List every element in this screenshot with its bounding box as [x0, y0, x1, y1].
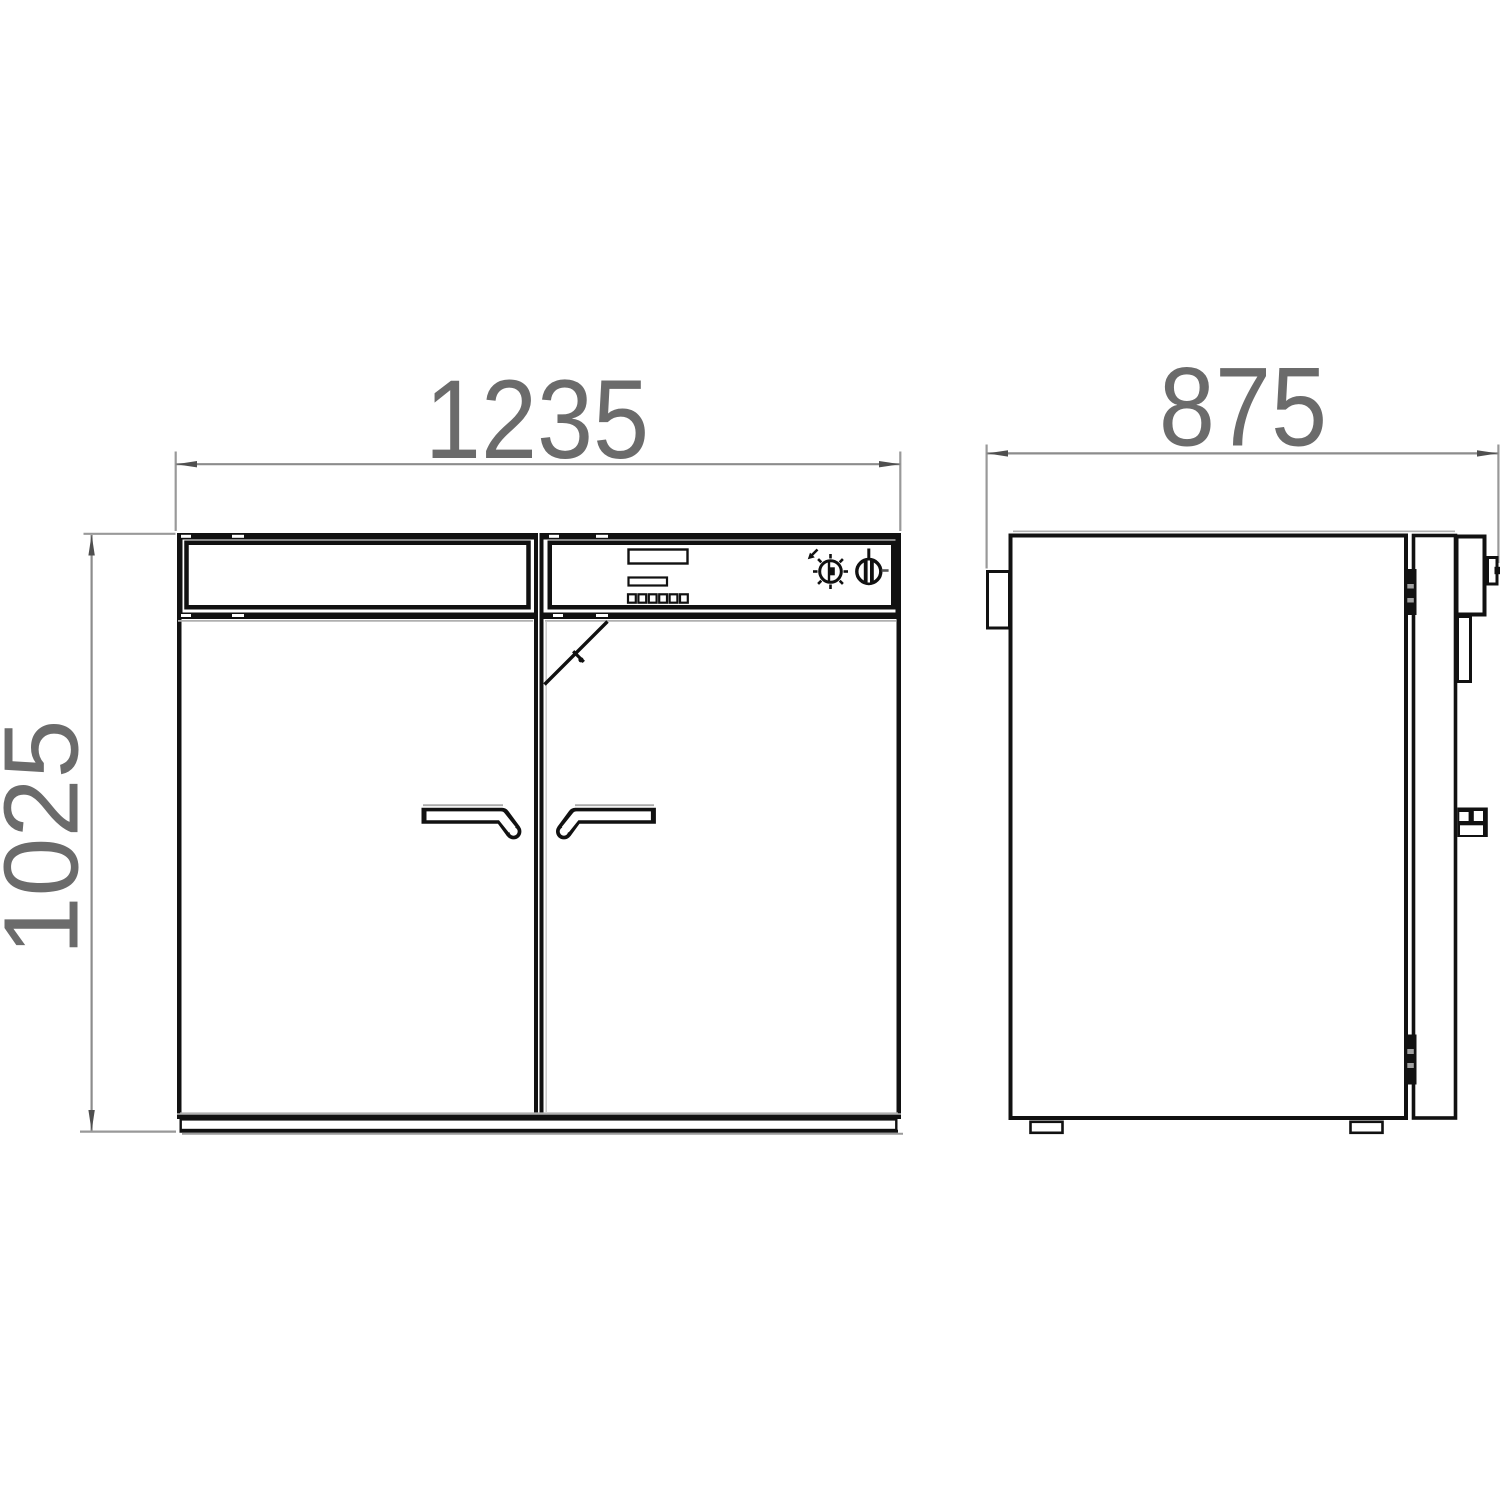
svg-text:1025: 1025	[0, 720, 101, 956]
svg-text:875: 875	[1159, 345, 1327, 470]
